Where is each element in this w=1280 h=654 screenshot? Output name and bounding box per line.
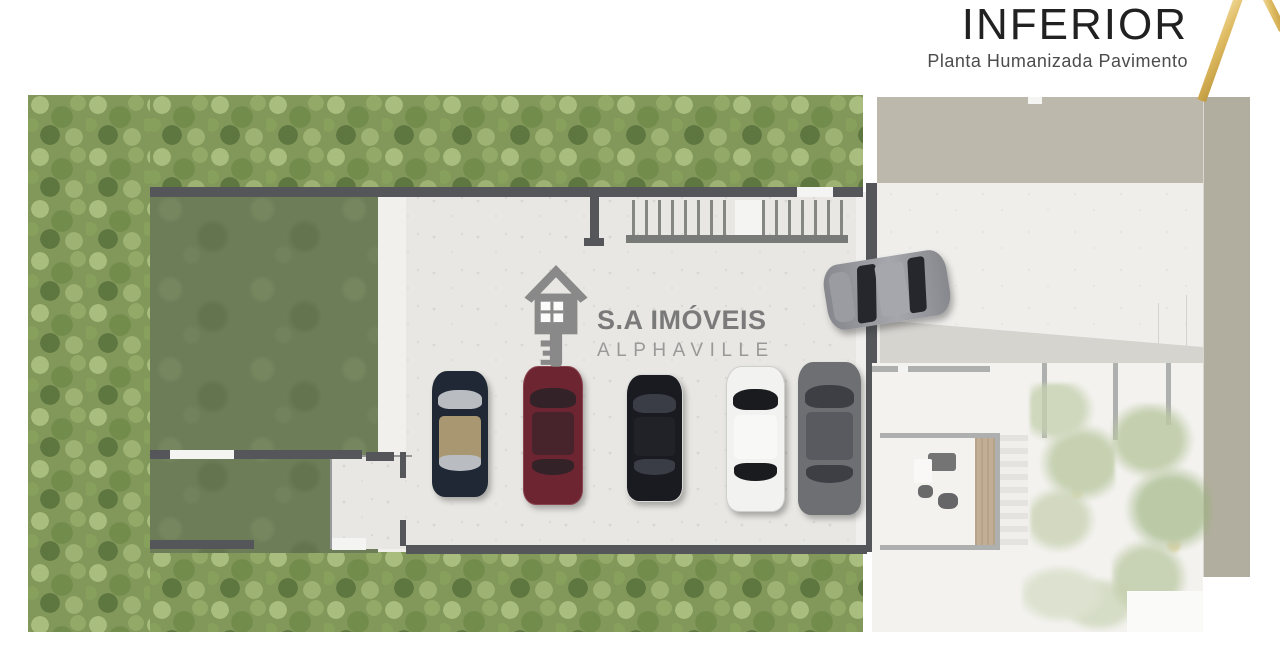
neighbor-plan-faded	[872, 363, 1203, 632]
striped-deck	[1000, 435, 1028, 545]
watermark-text: S.A IMÓVEIS ALPHAVILLE	[597, 305, 775, 362]
car-silver-sports	[798, 362, 861, 515]
car-red-sedan	[523, 366, 583, 505]
brand-gold-line-icon	[1197, 0, 1243, 102]
desk-top	[914, 459, 932, 483]
chair2	[938, 493, 958, 509]
shrub-cluster3	[1022, 563, 1132, 632]
car-black-sedan-ws	[633, 394, 676, 413]
desk	[928, 453, 956, 471]
car-entering-gray-e-roof	[874, 261, 910, 318]
upper-terrace-band	[877, 97, 1250, 183]
chair	[918, 485, 933, 498]
trees-top	[150, 95, 863, 187]
car-silver-sports-ws	[805, 385, 854, 408]
title-block: INFERIOR Planta Humanizada Pavimento	[927, 2, 1188, 72]
trees-bottom	[150, 548, 863, 632]
wall-stub	[590, 197, 599, 243]
car-entering-gray-e-ws	[857, 263, 876, 323]
car-entering-gray-e-rw	[908, 256, 928, 314]
car-convertible-navy-ws	[438, 390, 482, 409]
car-white-sedan-roof	[734, 415, 776, 460]
house-key-icon	[523, 265, 589, 371]
step-gate	[332, 538, 366, 550]
car-entering-gray-e-hood	[828, 271, 857, 324]
trees-left	[28, 95, 150, 632]
car-silver-sports-rw	[806, 465, 853, 483]
page: INFERIOR Planta Humanizada Pavimento	[0, 0, 1280, 654]
stairs-landing	[735, 200, 762, 236]
watermark-line2: ALPHAVILLE	[597, 340, 775, 362]
car-red-sedan-roof	[532, 412, 575, 454]
car-red-sedan-rw	[532, 459, 575, 475]
top-gate	[797, 187, 833, 197]
wooden-deck	[975, 438, 995, 545]
terrace-notch	[1028, 97, 1042, 104]
car-convertible-navy	[432, 371, 488, 497]
page-title: INFERIOR	[927, 2, 1188, 48]
car-black-sedan	[626, 374, 683, 502]
stairs-rail	[626, 235, 848, 243]
step-notch2	[400, 452, 406, 478]
lawn-wall-bottom	[150, 540, 254, 549]
page-subtitle: Planta Humanizada Pavimento	[927, 51, 1188, 72]
car-silver-sports-roof	[806, 412, 853, 459]
car-black-sedan-roof	[634, 417, 675, 456]
car-white-sedan-rw	[734, 463, 776, 480]
stairs	[632, 200, 845, 236]
neighbor-plan-content	[872, 363, 1203, 632]
garage-bottom-wall	[406, 545, 867, 554]
car-convertible-navy-rw	[439, 455, 480, 470]
brand-gold-line2-icon	[1262, 0, 1280, 32]
faded-room-wall-bottom	[880, 545, 1000, 550]
step-notch	[366, 452, 394, 461]
faded-wall-gap	[898, 366, 908, 372]
wall-stub-foot	[584, 238, 604, 246]
watermark-line1: S.A IMÓVEIS	[597, 305, 775, 336]
car-black-sedan-rw	[634, 459, 675, 474]
shrub-cluster	[1030, 383, 1115, 573]
watermark: S.A IMÓVEIS ALPHAVILLE	[523, 265, 775, 371]
car-white-sedan	[726, 366, 785, 512]
boundary-wall-top	[150, 187, 863, 197]
faded-wall-a	[872, 366, 990, 372]
step-notch3	[400, 520, 406, 546]
lawn-gate	[170, 450, 234, 459]
floor-plan-rendering: S.A IMÓVEIS ALPHAVILLE	[28, 95, 1250, 632]
car-white-sedan-ws	[733, 389, 777, 411]
white-patch	[1127, 591, 1203, 632]
car-red-sedan-ws	[530, 388, 575, 409]
